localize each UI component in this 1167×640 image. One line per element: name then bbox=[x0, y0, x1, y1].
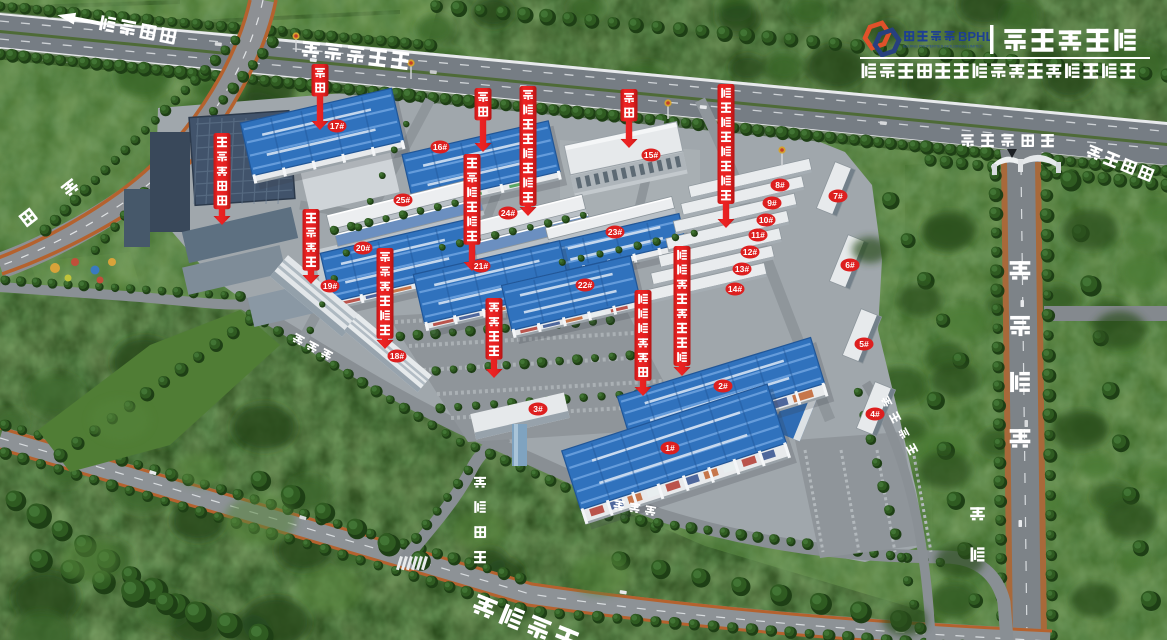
svg-text:10#: 10# bbox=[759, 215, 773, 225]
svg-text:17#: 17# bbox=[330, 121, 344, 131]
svg-text:14#: 14# bbox=[728, 284, 742, 294]
svg-text:BPHL: BPHL bbox=[958, 29, 993, 44]
svg-text:11#: 11# bbox=[751, 230, 765, 240]
svg-text:16#: 16# bbox=[433, 142, 447, 152]
svg-text:23#: 23# bbox=[608, 227, 622, 237]
svg-text:3#: 3# bbox=[533, 404, 543, 414]
svg-text:13#: 13# bbox=[735, 264, 749, 274]
svg-text:18#: 18# bbox=[390, 351, 404, 361]
svg-text:8#: 8# bbox=[775, 180, 785, 190]
svg-text:7#: 7# bbox=[833, 191, 843, 201]
svg-text:1#: 1# bbox=[665, 443, 675, 453]
svg-text:BEIJING PROPERTIES (HOLDINGS): BEIJING PROPERTIES (HOLDINGS) LIMITED bbox=[903, 45, 983, 49]
svg-text:24#: 24# bbox=[501, 208, 515, 218]
svg-text:4#: 4# bbox=[870, 409, 880, 419]
svg-text:12#: 12# bbox=[743, 247, 757, 257]
svg-text:20#: 20# bbox=[356, 243, 370, 253]
svg-text:5#: 5# bbox=[859, 339, 869, 349]
svg-text:15#: 15# bbox=[644, 150, 658, 160]
svg-text:25#: 25# bbox=[396, 195, 410, 205]
svg-text:9#: 9# bbox=[767, 198, 777, 208]
svg-text:19#: 19# bbox=[323, 281, 337, 291]
svg-text:21#: 21# bbox=[474, 261, 488, 271]
svg-text:6#: 6# bbox=[845, 260, 855, 270]
svg-text:2#: 2# bbox=[718, 381, 728, 391]
svg-text:22#: 22# bbox=[578, 280, 592, 290]
